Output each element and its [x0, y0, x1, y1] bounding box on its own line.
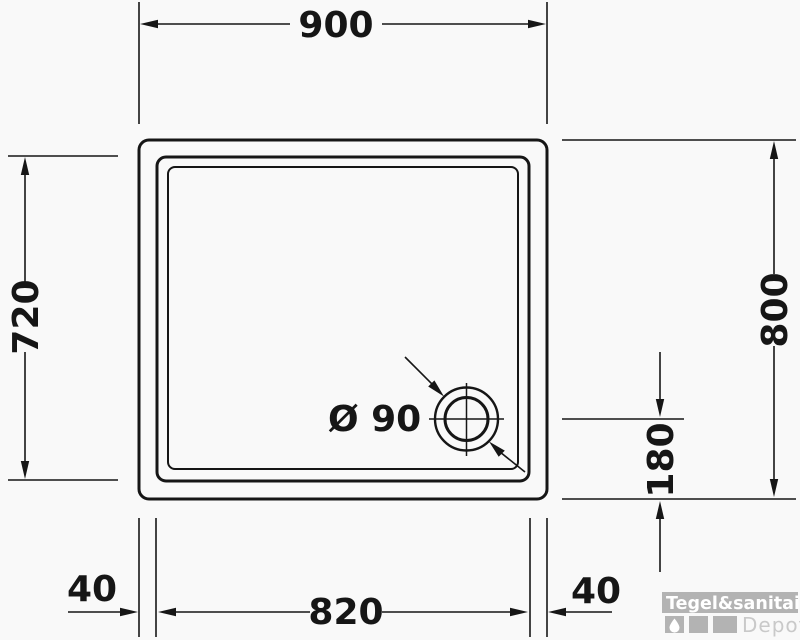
shower-tray-drawing: Ø 90 900 720 800 180: [0, 0, 800, 640]
width-outer-label: 900: [298, 5, 373, 46]
dimension-bottom-row: 40 820 40: [67, 518, 621, 637]
width-inner-label: 820: [308, 592, 383, 633]
leader-line-upper: [405, 357, 433, 385]
arrowhead-right: [510, 608, 528, 616]
height-inner-label: 720: [6, 279, 47, 354]
arrowhead-top: [770, 141, 778, 159]
arrowhead-right: [528, 20, 546, 28]
technical-drawing-canvas: Ø 90 900 720 800 180: [0, 0, 800, 640]
rim-right-label: 40: [571, 571, 621, 612]
logo-square: [713, 616, 737, 633]
arrowhead-down: [656, 399, 664, 417]
arrowhead-bottom: [21, 461, 29, 479]
arrowhead-right: [120, 608, 138, 616]
tegel-sanitair-depot-logo: Tegel&sanitair Depot: [662, 592, 800, 637]
logo-square: [689, 616, 708, 633]
dimension-left-720: 720: [6, 156, 118, 480]
drain-offset-label: 180: [641, 422, 682, 497]
arrowhead-up: [656, 501, 664, 519]
logo-brand-text: Tegel&sanitair: [666, 594, 800, 614]
rim-left-label: 40: [67, 569, 117, 610]
dimension-top-900: 900: [139, 2, 547, 124]
dimension-right-180: 180: [562, 352, 684, 572]
arrowhead-left: [158, 608, 176, 616]
arrowhead-left: [140, 20, 158, 28]
logo-sub-text: Depot: [742, 613, 800, 637]
drain-diameter-leader: Ø 90: [328, 357, 525, 472]
arrowhead-left: [548, 608, 566, 616]
arrowhead-bottom: [770, 479, 778, 497]
height-outer-label: 800: [755, 272, 796, 347]
drain-diameter-label: Ø 90: [328, 399, 421, 440]
arrowhead-top: [21, 157, 29, 175]
